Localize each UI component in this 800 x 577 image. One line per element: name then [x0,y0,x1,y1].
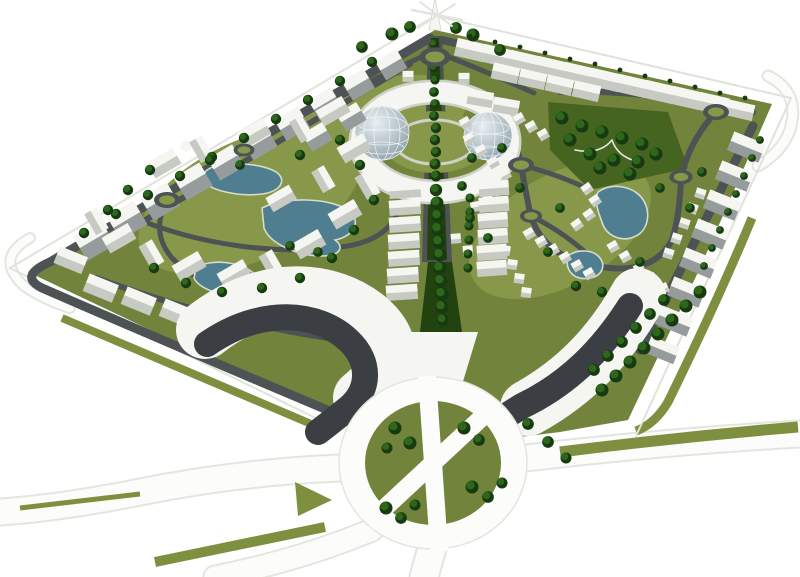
boulevard-gate-east [459,73,470,84]
splitter-island [295,482,332,516]
masterplan-render [0,0,800,577]
boulevard-gate-west [403,71,414,82]
north-roundabout [419,47,450,66]
masterplan-svg [0,0,800,577]
